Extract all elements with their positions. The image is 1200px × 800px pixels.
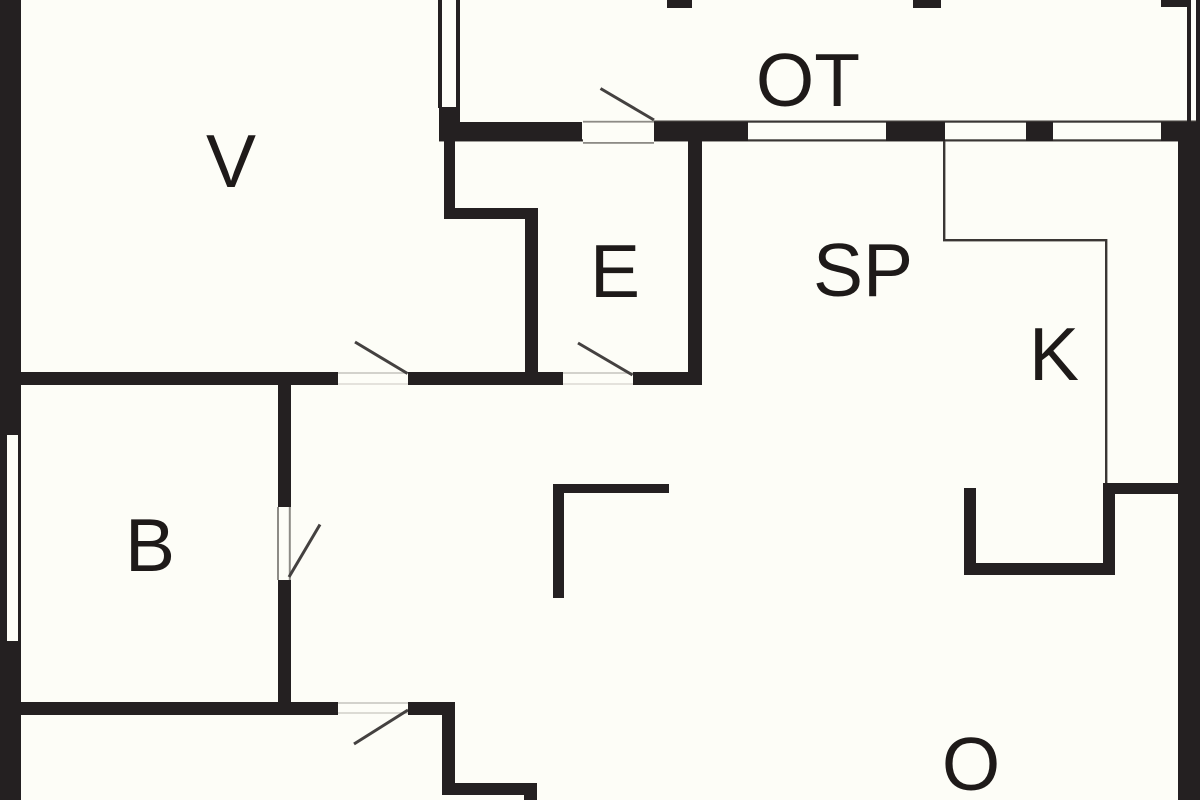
svg-text:OT: OT <box>756 38 860 122</box>
svg-text:K: K <box>1029 312 1079 396</box>
svg-text:SP: SP <box>813 228 913 312</box>
svg-text:O: O <box>942 722 1000 800</box>
svg-text:E: E <box>590 229 640 313</box>
svg-text:B: B <box>125 503 175 587</box>
svg-text:V: V <box>206 119 256 203</box>
